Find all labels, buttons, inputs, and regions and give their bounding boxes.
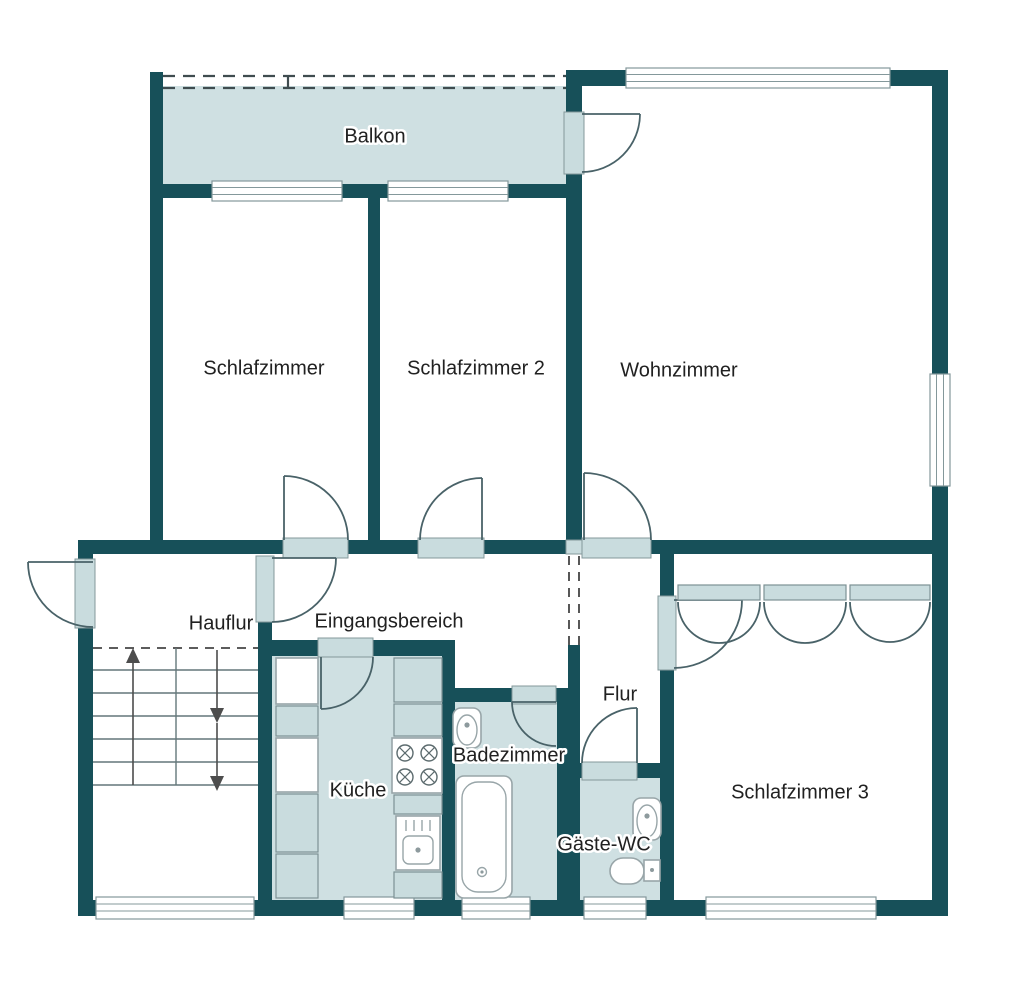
window-balkon-schlafzimmer2: [388, 181, 508, 201]
room-label-schlafzimmer: Schlafzimmer: [203, 357, 324, 379]
room-label-balkon: Balkon: [344, 125, 405, 147]
bathtub-icon: [456, 776, 512, 898]
window-wohnzimmer-top: [626, 68, 890, 88]
sill-wohnzimmer-door: [582, 538, 651, 558]
toilet-icon: [453, 708, 481, 748]
room-label-kueche: Küche: [330, 779, 387, 801]
window-wohnzimmer-right: [930, 374, 950, 486]
room-label-hauflur: Hauflur: [189, 612, 254, 634]
sill-flur-opening-cap: [566, 540, 582, 554]
stove-icon: [392, 738, 442, 793]
sill-kueche-door: [318, 638, 373, 657]
sill-building-entrance-door: [75, 559, 95, 628]
floor-plan-page: Balkon Schlafzimmer Schlafzimmer 2 Wohnz…: [0, 0, 1024, 990]
room-label-schlafzimmer3: Schlafzimmer 3: [731, 781, 869, 803]
door-gaeste-wc: [582, 708, 637, 763]
room-label-wohnzimmer: Wohnzimmer: [620, 359, 738, 381]
kitchen-sink-icon: [396, 816, 440, 870]
door-schlafzimmer: [284, 476, 348, 540]
room-label-badezimmer: Badezimmer: [453, 744, 566, 766]
sill-schlafzimmer2-door: [418, 538, 484, 558]
room-label-flur: Flur: [603, 683, 638, 705]
wardrobe-icon: [678, 585, 930, 643]
door-balkon-to-wohnzimmer: [582, 114, 640, 172]
door-schlafzimmer2: [420, 478, 482, 540]
open-passage-dashed: [569, 556, 579, 645]
sill-schlafzimmer3-door: [658, 596, 676, 670]
floor-plan-drawing: Balkon Schlafzimmer Schlafzimmer 2 Wohnz…: [0, 0, 1024, 990]
stairs-down-arrow-icon: [210, 650, 224, 791]
door-wohnzimmer: [584, 473, 651, 540]
staircase-icon: [93, 648, 258, 791]
window-badezimmer-bottom: [462, 897, 530, 919]
sill-schlafzimmer-door: [283, 538, 348, 558]
window-kueche-bottom: [344, 897, 414, 919]
room-label-schlafzimmer2: Schlafzimmer 2: [407, 357, 545, 379]
sill-gaeste-wc-door: [582, 762, 637, 780]
room-label-gaeste-wc: Gäste-WC: [557, 833, 650, 855]
window-hauflur-bottom: [96, 897, 254, 919]
hand-basin-icon: [610, 858, 660, 884]
sill-balkon-door: [564, 112, 584, 174]
window-balkon-schlafzimmer: [212, 181, 342, 201]
door-schlafzimmer3: [674, 600, 742, 668]
window-gaeste-wc-bottom: [584, 897, 646, 919]
room-label-eingangsbereich: Eingangsbereich: [315, 610, 464, 632]
sill-entry-door: [256, 556, 274, 622]
balcony-railing: [163, 75, 566, 89]
kitchen-counter-left: [276, 658, 318, 898]
window-schlafzimmer3-bottom: [706, 897, 876, 919]
